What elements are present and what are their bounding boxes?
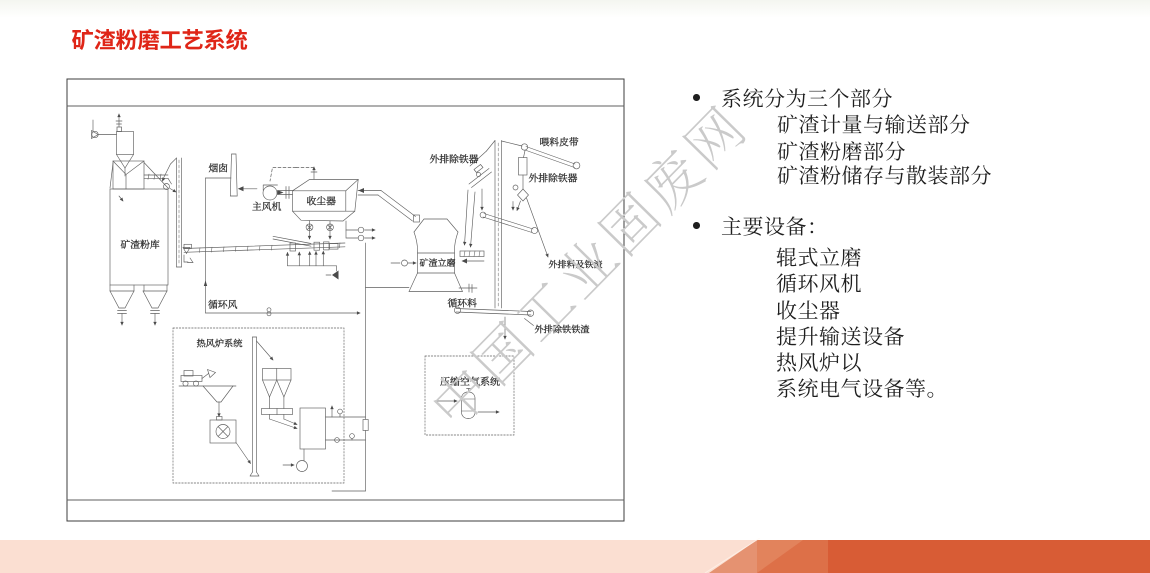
svg-text:喂料皮带: 喂料皮带: [540, 135, 579, 149]
svg-text:循环风: 循环风: [208, 297, 238, 311]
svg-text:矿渣粉库: 矿渣粉库: [121, 237, 160, 251]
svg-text:外排除铁器: 外排除铁器: [430, 152, 479, 166]
svg-text:外排除铁铁渣: 外排除铁铁渣: [535, 322, 590, 336]
svg-text:热风炉系统: 热风炉系统: [197, 336, 243, 350]
svg-text:外排除铁器: 外排除铁器: [529, 171, 578, 185]
svg-text:循环料: 循环料: [448, 296, 478, 310]
svg-text:烟囱: 烟囱: [209, 161, 229, 175]
svg-text:压缩空气系统: 压缩空气系统: [440, 373, 500, 388]
svg-text:主风机: 主风机: [252, 199, 282, 213]
svg-text:矿渣立磨: 矿渣立磨: [420, 256, 456, 269]
svg-text:外排料及铁渣: 外排料及铁渣: [549, 258, 603, 271]
svg-text:收尘器: 收尘器: [307, 194, 337, 208]
